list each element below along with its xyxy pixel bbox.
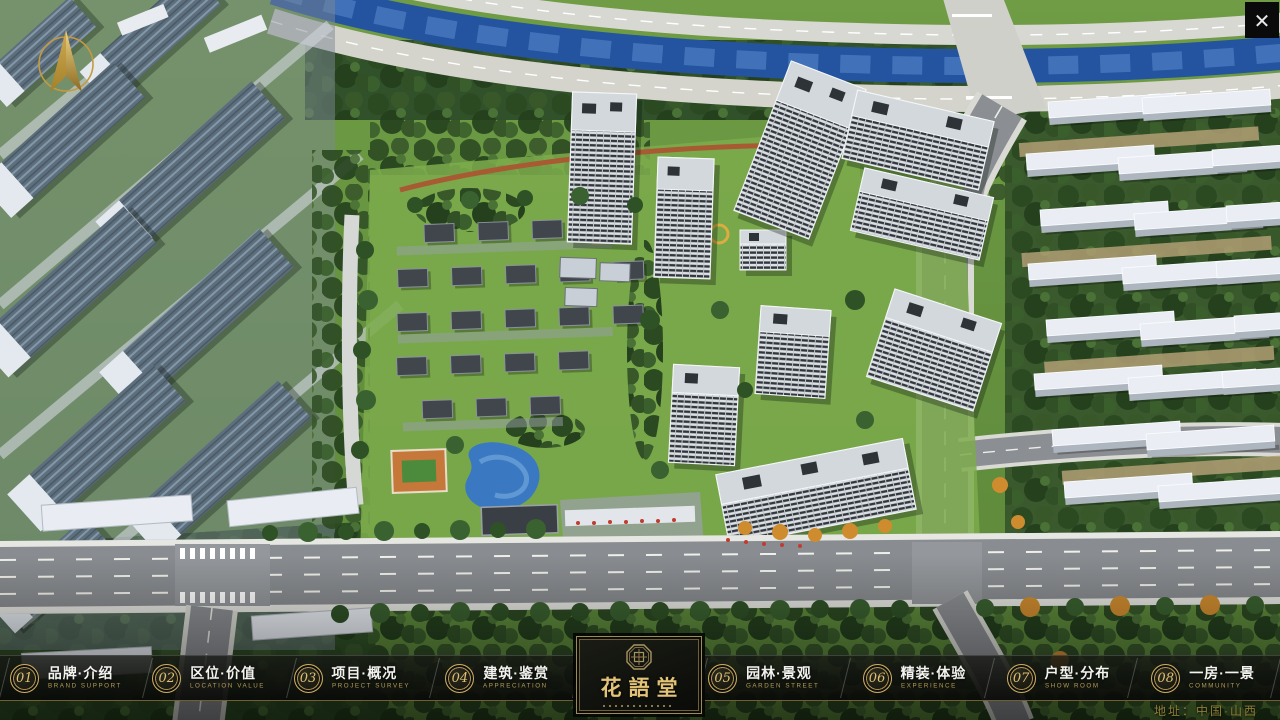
menu-sublabel: SHOW ROOM [1045,682,1100,689]
menu-number-badge: 05 [708,664,737,693]
menu-number-badge: 03 [294,664,323,693]
menu-item-location[interactable]: 02 区位·价值 LOCATION VALUE [148,656,290,700]
menu-group-left: 01 品牌·介绍 BRAND SUPPORT 02 区位·价值 LOCATION… [0,656,578,700]
menu-label: 园林·景观 [746,665,812,681]
menu-label: 一房·一景 [1189,665,1255,681]
masterplan-render [0,0,1280,720]
menu-sublabel: EXPERIENCE [901,682,957,689]
menu-sublabel: LOCATION VALUE [190,682,265,689]
menu-number-badge: 02 [152,664,181,693]
close-icon: ✕ [1254,9,1271,33]
menu-number-badge: 07 [1007,664,1036,693]
menu-number-badge: 04 [445,664,474,693]
menu-group-right: 05 园林·景观 GARDEN STREET 06 精装·体验 EXPERIEN… [702,656,1280,700]
menu-item-brand[interactable]: 01 品牌·介绍 BRAND SUPPORT [5,656,147,700]
menu-item-views[interactable]: 08 一房·一景 COMMUNITY [1133,656,1275,700]
menu-label: 品牌·介绍 [48,665,114,681]
brand-tagline-rule [603,705,675,707]
brand-logo-panel[interactable]: 花語堂 [576,636,702,714]
menu-sublabel: APPRECIATION [483,682,548,689]
project-address: 地址：中国·山西 [1154,702,1258,719]
menu-number-badge: 01 [10,664,39,693]
menu-sublabel: PROJECT SURVEY [332,682,410,689]
menu-label: 项目·概况 [332,665,398,681]
brand-name: 花語堂 [594,672,685,702]
close-button[interactable]: ✕ [1245,2,1279,38]
menu-number-badge: 06 [863,664,892,693]
menu-item-interior[interactable]: 06 精装·体验 EXPERIENCE [846,656,988,700]
menu-sublabel: GARDEN STREET [746,682,819,689]
menu-label: 建筑·鉴赏 [483,665,549,681]
octagonal-seal-icon [626,644,652,670]
menu-item-garden[interactable]: 05 园林·景观 GARDEN STREET [703,656,845,700]
menu-item-floorplan[interactable]: 07 户型·分布 SHOW ROOM [990,656,1132,700]
menu-sublabel: BRAND SUPPORT [48,682,122,689]
menu-sublabel: COMMUNITY [1189,682,1242,689]
menu-number-badge: 08 [1151,664,1180,693]
menu-label: 户型·分布 [1045,665,1111,681]
menu-item-architecture[interactable]: 04 建筑·鉴赏 APPRECIATION [435,656,577,700]
menu-label: 区位·价值 [190,665,256,681]
menu-item-project[interactable]: 03 项目·概况 PROJECT SURVEY [292,656,434,700]
menu-label: 精装·体验 [901,665,967,681]
